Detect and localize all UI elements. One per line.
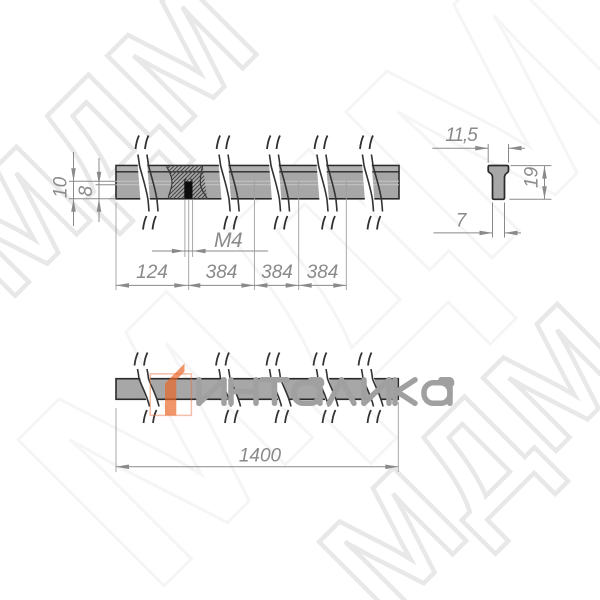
svg-text:384: 384 (206, 262, 238, 283)
svg-text:124: 124 (136, 262, 168, 283)
svg-text:M4: M4 (214, 229, 242, 252)
svg-text:8: 8 (76, 186, 97, 197)
svg-text:384: 384 (307, 262, 339, 283)
svg-text:19: 19 (522, 166, 543, 188)
svg-text:7: 7 (456, 211, 468, 232)
svg-text:10: 10 (51, 176, 72, 198)
svg-text:384: 384 (261, 262, 293, 283)
svg-text:11,5: 11,5 (445, 125, 478, 146)
svg-text:1400: 1400 (239, 446, 282, 467)
